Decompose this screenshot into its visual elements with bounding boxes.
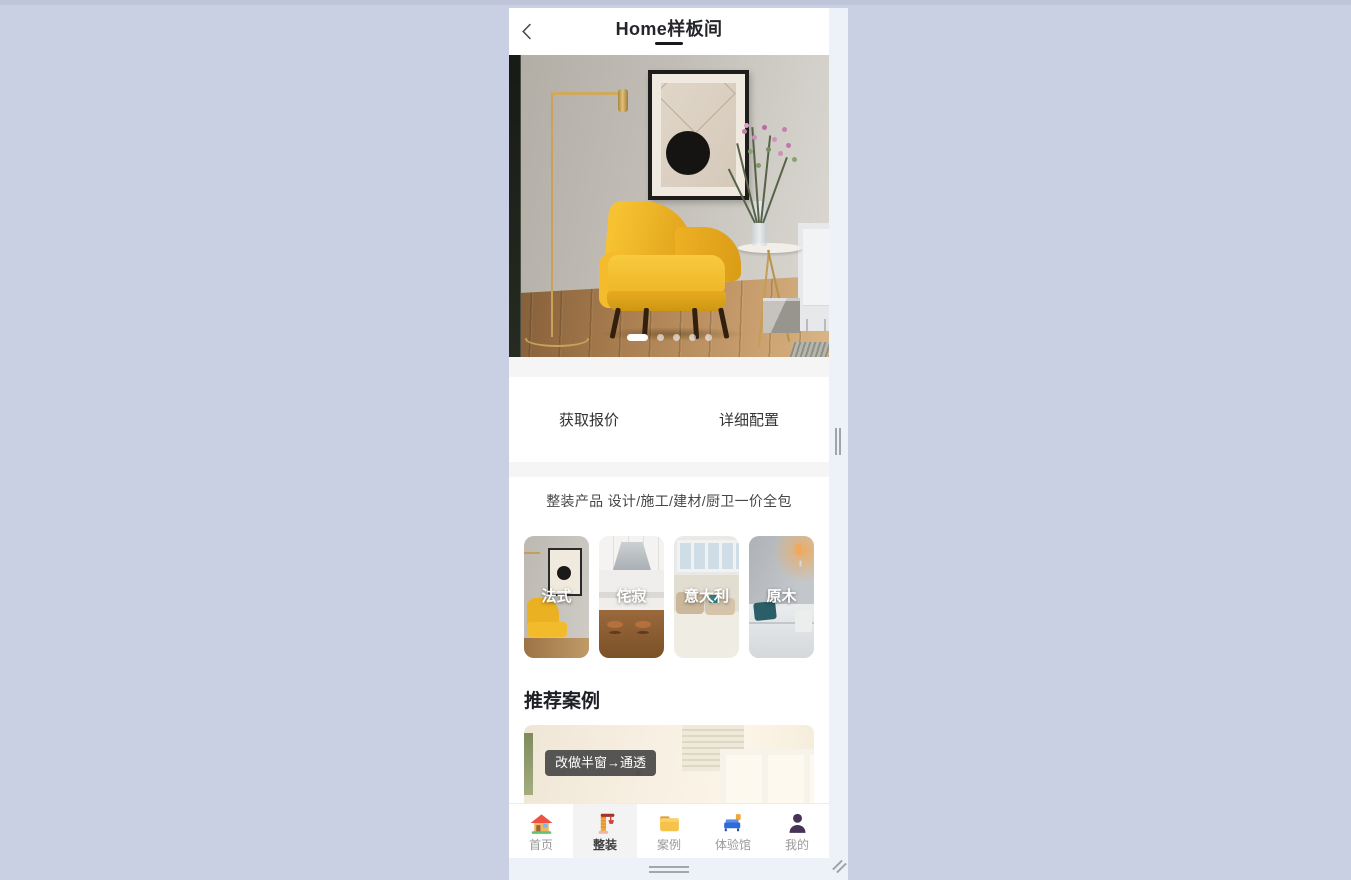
tab-home[interactable]: 首页 bbox=[509, 804, 573, 858]
phone-frame: Home样板间 bbox=[509, 8, 829, 858]
height-drag-handle[interactable] bbox=[649, 871, 689, 873]
hero-concrete-cube bbox=[763, 298, 800, 333]
cta-section: 获取报价 详细配置 bbox=[509, 377, 829, 462]
width-drag-handle[interactable] bbox=[835, 428, 837, 455]
width-drag-handle[interactable] bbox=[839, 428, 841, 455]
carousel-dot-4[interactable] bbox=[689, 334, 696, 341]
style-card-log-wood[interactable]: 原木 bbox=[749, 536, 814, 658]
promo-text: 整装产品 设计/施工/建材/厨卫一价全包 bbox=[546, 491, 792, 511]
navbar: Home样板间 bbox=[509, 8, 829, 55]
home-icon bbox=[529, 811, 554, 836]
hero-carousel[interactable] bbox=[509, 55, 829, 357]
carousel-dot-1[interactable] bbox=[627, 334, 648, 341]
chevron-left-icon bbox=[521, 23, 532, 40]
style-card-label: 侘寂 bbox=[599, 585, 664, 606]
corner-resize-handle[interactable] bbox=[830, 856, 848, 874]
tab-mine[interactable]: 我的 bbox=[765, 804, 829, 858]
section-title: 推荐案例 bbox=[524, 672, 814, 725]
case-tag: 改做半窗→通透 bbox=[545, 750, 656, 776]
canvas-top-edge bbox=[0, 0, 1351, 5]
crane-icon bbox=[593, 811, 618, 836]
get-quote-button[interactable]: 获取报价 bbox=[509, 409, 669, 430]
style-card-french[interactable]: 法式 bbox=[524, 536, 589, 658]
hero-flowers bbox=[724, 123, 814, 245]
style-card-label: 法式 bbox=[524, 585, 589, 606]
detail-config-button[interactable]: 详细配置 bbox=[669, 409, 829, 430]
page-title: Home样板间 bbox=[616, 19, 723, 39]
page-title-block: Home样板间 bbox=[616, 19, 723, 45]
hero-doormat bbox=[790, 342, 829, 357]
tabbar: 首页 整装 案例 bbox=[509, 803, 829, 858]
back-button[interactable] bbox=[521, 8, 547, 55]
sofa-icon bbox=[721, 811, 746, 836]
hero-floor-lamp bbox=[551, 93, 553, 337]
promo-banner: 整装产品 设计/施工/建材/厨卫一价全包 bbox=[509, 477, 829, 524]
style-card-wabi-sabi[interactable]: 侘寂 bbox=[599, 536, 664, 658]
tab-label: 体验馆 bbox=[715, 838, 751, 852]
title-underline bbox=[655, 42, 683, 45]
simulator-bottom-gutter bbox=[509, 858, 829, 880]
tab-cases[interactable]: 案例 bbox=[637, 804, 701, 858]
hero-door-frame bbox=[509, 55, 520, 357]
style-card-label: 意大利 bbox=[674, 585, 739, 606]
carousel-dot-3[interactable] bbox=[673, 334, 680, 341]
style-card-label: 原木 bbox=[749, 585, 814, 606]
section-divider bbox=[509, 357, 829, 377]
tab-whole-decor[interactable]: 整装 bbox=[573, 804, 637, 858]
style-card-italian[interactable]: 意大利 bbox=[674, 536, 739, 658]
tab-experience-hall[interactable]: 体验馆 bbox=[701, 804, 765, 858]
tab-label: 首页 bbox=[529, 838, 553, 852]
tab-label: 我的 bbox=[785, 838, 809, 852]
folder-icon bbox=[657, 811, 682, 836]
carousel-dot-5[interactable] bbox=[705, 334, 712, 341]
section-divider bbox=[509, 462, 829, 477]
carousel-dots bbox=[509, 334, 829, 341]
tab-label: 案例 bbox=[657, 838, 681, 852]
height-drag-handle[interactable] bbox=[649, 866, 689, 868]
carousel-dot-2[interactable] bbox=[657, 334, 664, 341]
style-card-row: 法式 侘寂 意大利 原木 bbox=[509, 524, 829, 672]
simulator-right-gutter bbox=[829, 8, 848, 880]
user-icon bbox=[785, 811, 810, 836]
tab-label: 整装 bbox=[593, 838, 617, 852]
